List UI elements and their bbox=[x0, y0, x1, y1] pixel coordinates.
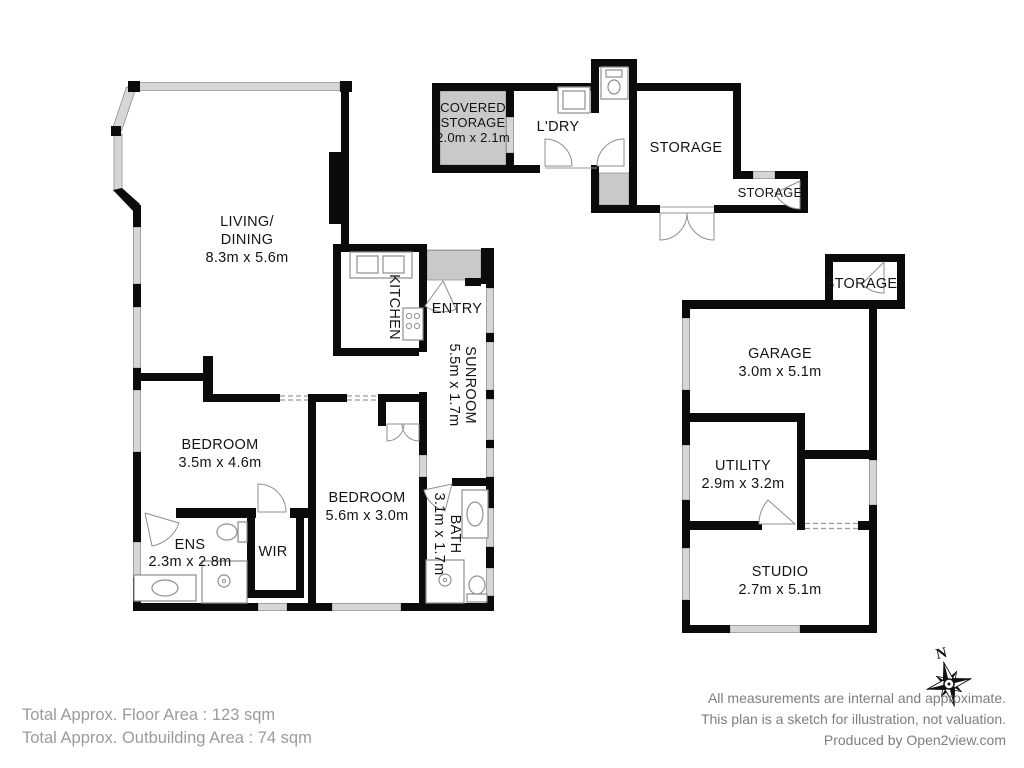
disclaimer-line-1: All measurements are internal and approx… bbox=[708, 690, 1006, 706]
utility-dims: 2.9m x 3.2m bbox=[701, 476, 784, 492]
sunroom-label: SUNROOM bbox=[462, 346, 478, 424]
utility-label: UTILITY bbox=[715, 458, 771, 474]
floorplan-canvas: LIVING/ DINING 8.3m x 5.6m KITCHEN ENTRY… bbox=[0, 0, 1024, 768]
bedroom2-dims: 5.6m x 3.0m bbox=[325, 508, 408, 524]
storage-top-label: STORAGE bbox=[825, 276, 898, 292]
floor-area-total: Total Approx. Floor Area : 123 sqm bbox=[22, 706, 275, 724]
bath-dims: 3.1m x 1.7m bbox=[431, 492, 447, 575]
studio-label: STUDIO bbox=[752, 564, 809, 580]
compass-north-label: N bbox=[934, 645, 949, 663]
storage-small-label: STORAGE bbox=[738, 185, 803, 200]
walkway-shade bbox=[599, 173, 629, 205]
covered-storage-label: COVERED bbox=[440, 100, 506, 115]
sunroom-dims: 5.5m x 1.7m bbox=[446, 343, 462, 426]
living-dims: 8.3m x 5.6m bbox=[205, 250, 288, 266]
garage-label: GARAGE bbox=[748, 346, 812, 362]
outbuilding-area-total: Total Approx. Outbuilding Area : 74 sqm bbox=[22, 729, 312, 747]
bedroom1-label: BEDROOM bbox=[181, 437, 258, 453]
bedroom1-dims: 3.5m x 4.6m bbox=[178, 455, 261, 471]
disclaimer-line-2: This plan is a sketch for illustration, … bbox=[701, 711, 1006, 727]
footer: Total Approx. Floor Area : 123 sqm Total… bbox=[22, 690, 1006, 748]
floorplan-svg: LIVING/ DINING 8.3m x 5.6m KITCHEN ENTRY… bbox=[0, 0, 1024, 768]
laundry-label: L'DRY bbox=[537, 119, 580, 135]
ens-dims: 2.3m x 2.8m bbox=[148, 554, 231, 570]
storage-main-label: STORAGE bbox=[650, 140, 723, 156]
bedroom2-label: BEDROOM bbox=[328, 490, 405, 506]
covered-storage-label-2: STORAGE bbox=[441, 115, 506, 130]
producer-credit: Produced by Open2view.com bbox=[824, 732, 1006, 748]
bath-label: BATH bbox=[447, 515, 463, 554]
studio-dims: 2.7m x 5.1m bbox=[738, 582, 821, 598]
living-label: LIVING/ bbox=[220, 214, 274, 230]
ens-label: ENS bbox=[175, 537, 206, 553]
wir-label: WIR bbox=[258, 544, 287, 560]
kitchen-label: KITCHEN bbox=[386, 274, 402, 340]
covered-storage-dims: 2.0m x 2.1m bbox=[436, 130, 510, 145]
entry-porch-shade bbox=[427, 250, 481, 280]
entry-label: ENTRY bbox=[432, 301, 482, 317]
garage-dims: 3.0m x 5.1m bbox=[738, 364, 821, 380]
living-label-2: DINING bbox=[221, 232, 274, 248]
